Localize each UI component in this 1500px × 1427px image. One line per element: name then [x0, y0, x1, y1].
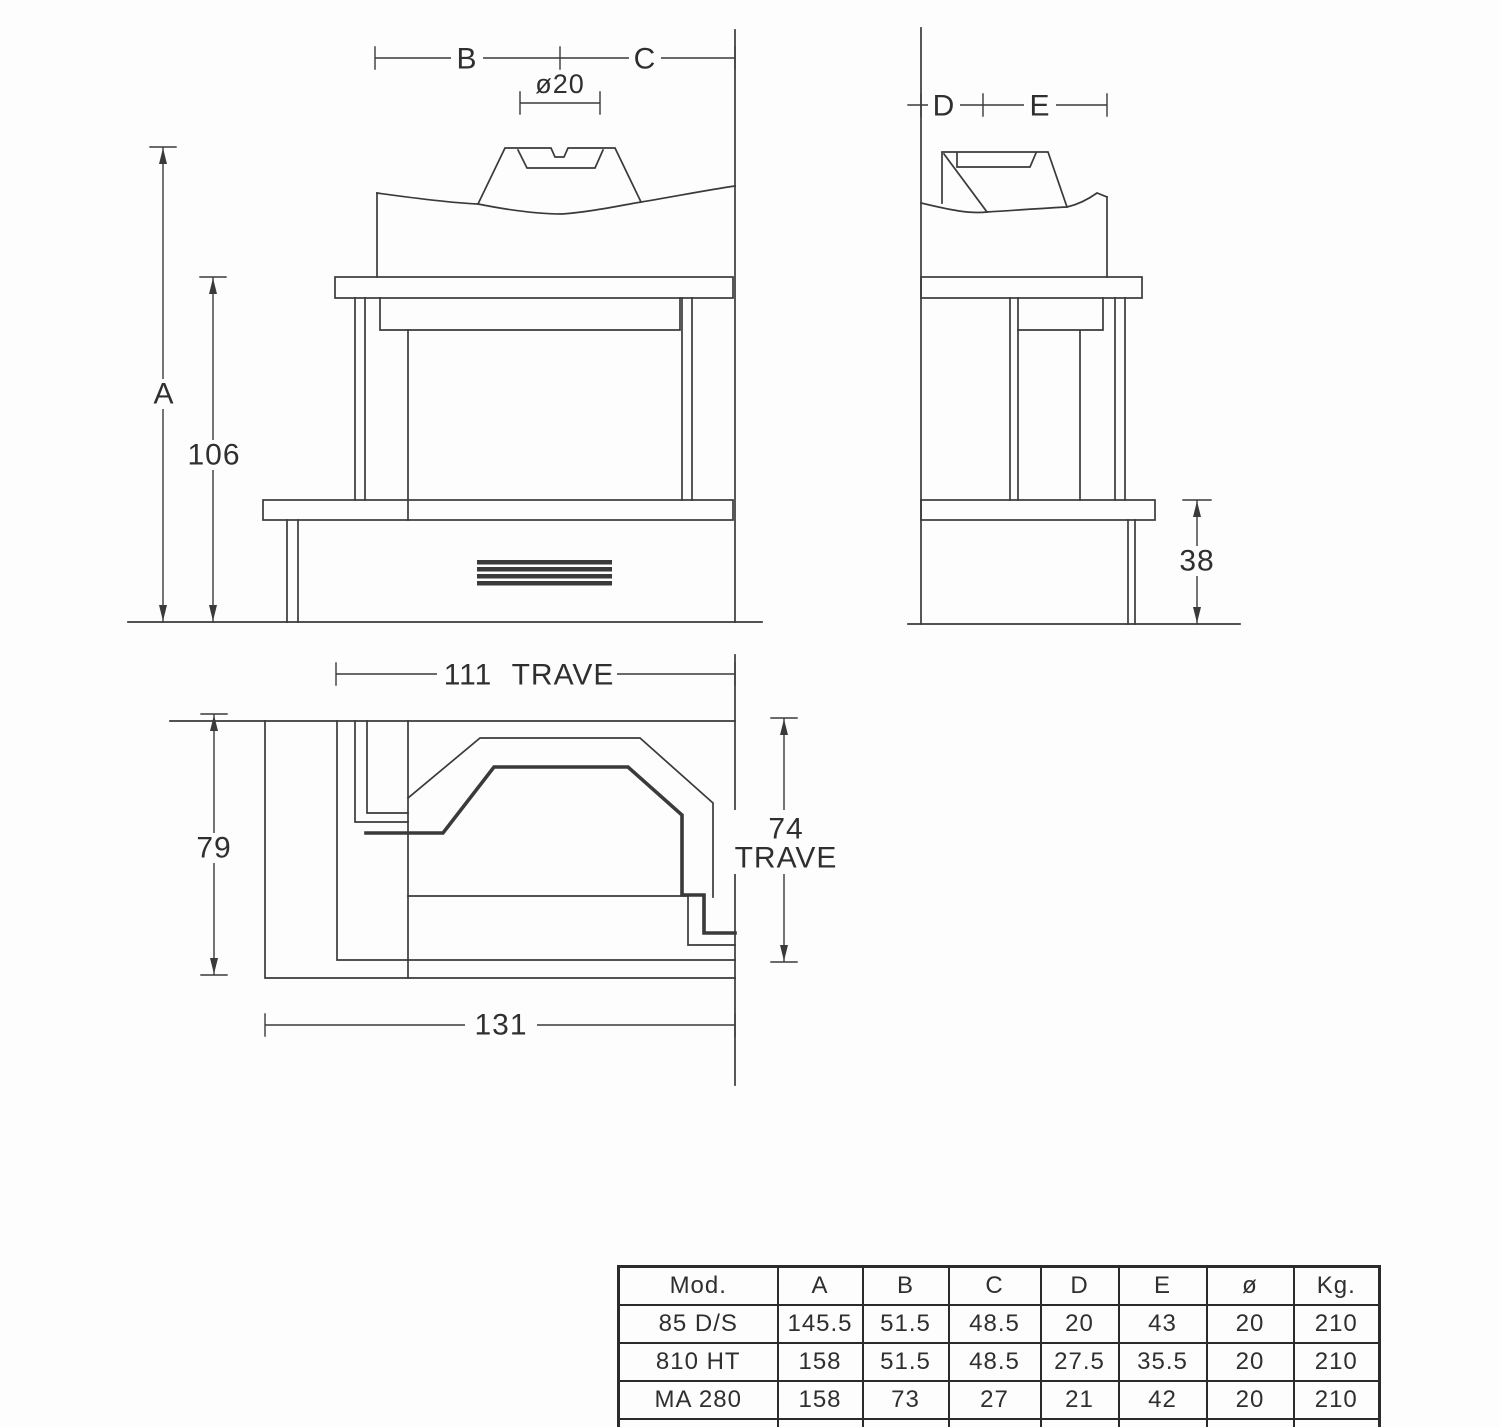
cell-model [619, 1419, 778, 1427]
cell-b: 51.5 [863, 1343, 949, 1381]
front-hood-top [377, 186, 735, 214]
spec-table-header-row: Mod. A B C D E ø Kg. [619, 1267, 1380, 1306]
plan-column-stubs [355, 721, 408, 822]
front-dim-a: A [147, 147, 181, 622]
side-flue-inner [957, 153, 1036, 167]
front-dim-106-label: 106 [187, 439, 240, 472]
spec-table: Mod. A B C D E ø Kg. 85 D/S 145.5 51.5 4… [617, 1265, 1381, 1427]
header-c: C [949, 1267, 1041, 1306]
side-dim-38-label: 38 [1179, 545, 1214, 578]
cell-b: 73 [863, 1381, 949, 1419]
cell-kg: 210 [1294, 1381, 1380, 1419]
header-d: D [1041, 1267, 1119, 1306]
front-lintel [380, 298, 680, 330]
cell-d [1041, 1419, 1119, 1427]
plan-dim-111: 111 TRAVE [336, 657, 735, 692]
plan-dim-74: 74 TRAVE [731, 718, 839, 962]
side-flue-diagonal [944, 154, 987, 212]
side-dim-d-label: D [933, 90, 956, 123]
front-dim-a-label: A [153, 378, 174, 411]
plan-dim-111-label: 111 [444, 659, 493, 692]
plan-firebox-inner [366, 767, 735, 933]
vent-grille-icon [477, 560, 612, 586]
cell-kg: 210 [1294, 1305, 1380, 1343]
cell-d: 20 [1041, 1305, 1119, 1343]
table-row: 810 HT 158 51.5 48.5 27.5 35.5 20 210 [619, 1343, 1380, 1381]
side-columns [1010, 298, 1125, 500]
cell-kg [1294, 1419, 1380, 1427]
plan-dim-131: 131 [265, 1009, 735, 1042]
front-flue-collar [478, 148, 641, 204]
table-row-clipped [619, 1419, 1380, 1427]
front-view: A 106 B C ø20 [128, 30, 762, 622]
cell-c [949, 1419, 1041, 1427]
cell-a: 158 [778, 1381, 863, 1419]
cell-d: 27.5 [1041, 1343, 1119, 1381]
cell-e: 42 [1119, 1381, 1207, 1419]
front-flue-inner [518, 150, 603, 168]
side-hearth-shelf [921, 500, 1155, 520]
cell-diameter [1207, 1419, 1294, 1427]
side-lintel [1018, 298, 1103, 500]
technical-drawing: A 106 B C ø20 [0, 0, 1500, 1427]
side-dim-e-label: E [1029, 90, 1050, 123]
plan-dim-79: 79 [187, 714, 241, 975]
cell-diameter: 20 [1207, 1305, 1294, 1343]
cell-a [778, 1419, 863, 1427]
front-dim-106: 106 [183, 277, 245, 622]
front-hearth-shelf [263, 500, 733, 520]
header-mod: Mod. [619, 1267, 778, 1306]
header-b: B [863, 1267, 949, 1306]
cell-e: 43 [1119, 1305, 1207, 1343]
cell-a: 158 [778, 1343, 863, 1381]
cell-c: 48.5 [949, 1305, 1041, 1343]
header-diameter: ø [1207, 1267, 1294, 1306]
front-dim-b-label: B [456, 43, 477, 76]
cell-model: MA 280 [619, 1381, 778, 1419]
cell-b: 51.5 [863, 1305, 949, 1343]
front-columns [355, 298, 692, 500]
cell-b [863, 1419, 949, 1427]
cell-model: 810 HT [619, 1343, 778, 1381]
side-mantel-shelf [921, 277, 1142, 298]
header-kg: Kg. [1294, 1267, 1380, 1306]
cell-model: 85 D/S [619, 1305, 778, 1343]
plan-dim-79-label: 79 [196, 832, 231, 865]
cell-diameter: 20 [1207, 1381, 1294, 1419]
front-base-left-face [287, 520, 298, 622]
cell-e: 35.5 [1119, 1343, 1207, 1381]
cell-d: 21 [1041, 1381, 1119, 1419]
side-dim-38: 38 [1175, 500, 1219, 624]
side-hood-top [921, 193, 1107, 213]
cell-diameter: 20 [1207, 1343, 1294, 1381]
side-dim-de: D E [908, 89, 1107, 123]
front-dim-flue: ø20 [520, 69, 600, 114]
plan-body-outline [337, 721, 735, 960]
plan-hearth-edge [408, 896, 735, 945]
cell-c: 27 [949, 1381, 1041, 1419]
header-a: A [778, 1267, 863, 1306]
cell-c: 48.5 [949, 1343, 1041, 1381]
front-dim-c-label: C [634, 43, 657, 76]
cell-kg: 210 [1294, 1343, 1380, 1381]
side-base-front-face [1128, 520, 1135, 624]
table-row: MA 280 158 73 27 21 42 20 210 [619, 1381, 1380, 1419]
front-dim-flue-label: ø20 [535, 69, 585, 99]
plan-dim-111-word: TRAVE [512, 659, 615, 692]
table-row: 85 D/S 145.5 51.5 48.5 20 43 20 210 [619, 1305, 1380, 1343]
cell-a: 145.5 [778, 1305, 863, 1343]
front-mantel-shelf [335, 277, 733, 298]
header-e: E [1119, 1267, 1207, 1306]
side-view: D E 38 [908, 28, 1240, 624]
plan-view: 111 TRAVE 79 74 TRAVE 131 [170, 655, 839, 1085]
plan-dim-74-word: TRAVE [735, 842, 838, 875]
side-flue-collar [942, 152, 1067, 207]
cell-e [1119, 1419, 1207, 1427]
plan-dim-131-label: 131 [474, 1009, 527, 1042]
fireplace-spec-sheet: A 106 B C ø20 [0, 0, 1500, 1427]
